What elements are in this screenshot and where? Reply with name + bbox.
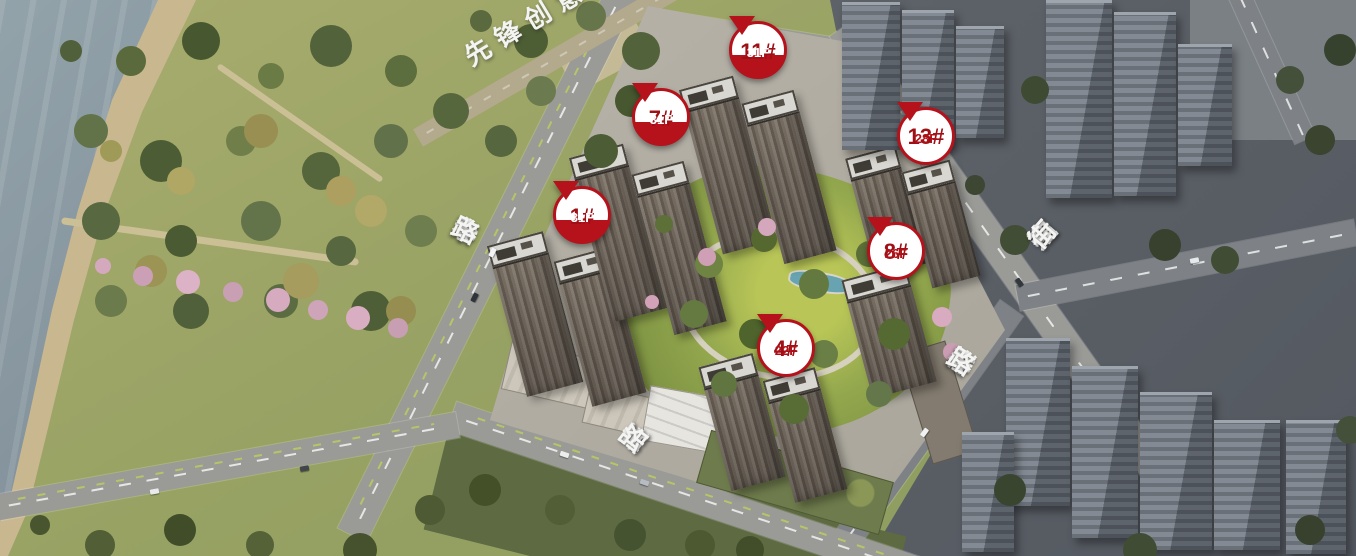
car xyxy=(150,488,160,494)
marker-pointer xyxy=(867,217,893,236)
marker-pointer xyxy=(897,102,923,121)
marker-pointer xyxy=(553,181,579,200)
garden-trees xyxy=(655,215,673,233)
garden-blossom-trees xyxy=(645,295,659,309)
marker-pointer xyxy=(757,314,783,333)
road-label-huatai: 华泰路 xyxy=(442,237,474,253)
marker-pointer xyxy=(632,83,658,102)
building-floors: 28F xyxy=(915,132,937,145)
building-floors: 31F xyxy=(747,46,769,59)
south-trees xyxy=(30,515,50,535)
city-tower xyxy=(1046,0,1112,198)
city-tower xyxy=(962,432,1014,552)
building-floors: 31F xyxy=(650,113,672,126)
building-floors: 31F xyxy=(571,211,593,224)
park-trees xyxy=(60,40,82,62)
building-floors: 22F xyxy=(775,344,797,357)
city-tower xyxy=(1114,12,1176,196)
city-tower xyxy=(1214,420,1280,550)
city-tower xyxy=(1286,420,1346,554)
city-tower xyxy=(956,26,1004,138)
city-tower xyxy=(1178,44,1232,166)
city-tower xyxy=(842,2,900,150)
aerial-site-map: 先锋创意 华泰路 迎福街 祥泰路 庆喜路 1# 31F 4# 22F 7# 31… xyxy=(0,0,1356,556)
city-tower xyxy=(1006,338,1070,506)
city-trees xyxy=(965,175,985,195)
car xyxy=(300,465,310,471)
city-tower xyxy=(1140,392,1212,550)
marker-pointer xyxy=(729,16,755,35)
building-floors: 26F xyxy=(885,247,907,260)
park-path xyxy=(216,63,383,183)
blossom-trees xyxy=(95,258,111,274)
city-tower xyxy=(1072,366,1138,538)
autumn-trees xyxy=(100,140,122,162)
